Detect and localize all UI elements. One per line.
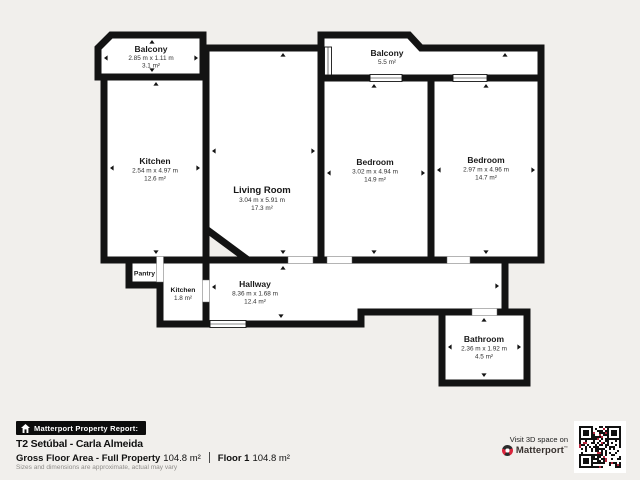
room-area: 14.9 m²: [364, 177, 386, 184]
room-area: 3.1 m²: [142, 63, 160, 70]
floor-value: 104.8 m²: [252, 453, 290, 464]
room-dims: 2.36 m x 1.92 m: [461, 346, 507, 353]
stats-divider: [209, 452, 210, 463]
room-name: Bathroom: [464, 334, 505, 344]
door-bedroom-left-hallway: [327, 257, 352, 264]
floor-plan-walls: [98, 35, 541, 383]
matterport-brand: Matterport™: [470, 445, 568, 456]
report-badge: Matterport Property Report:: [16, 421, 146, 435]
brand-name-text: Matterport: [516, 445, 564, 456]
door-kitchen-small-hallway: [203, 280, 210, 302]
report-badge-label: Matterport Property Report:: [34, 424, 138, 433]
room-area: 12.4 m²: [244, 299, 266, 306]
visit-3d-text: Visit 3D space on: [470, 435, 568, 444]
floor-label: Floor 1: [218, 453, 250, 464]
room-dims: 3.04 m x 5.91 m: [239, 197, 285, 204]
room-balcony-top-right-shape: [321, 35, 541, 78]
room-name: Balcony: [370, 48, 403, 58]
gross-area-label: Gross Floor Area - Full Property: [16, 453, 160, 464]
room-name: Balcony: [134, 44, 167, 54]
room-dims: 8.36 m x 1.68 m: [232, 291, 278, 298]
door-living-hallway: [288, 257, 313, 264]
room-name: Living Room: [233, 185, 291, 196]
room-name: Kitchen: [171, 287, 196, 294]
room-area: 12.6 m²: [144, 176, 166, 183]
room-living-shape: [206, 48, 321, 260]
room-area: 17.3 m²: [251, 205, 273, 212]
area-stats: Gross Floor Area - Full Property104.8 m²…: [16, 452, 290, 464]
room-name: Bedroom: [356, 157, 394, 167]
brand-trademark: ™: [564, 445, 568, 450]
gross-area-value: 104.8 m²: [163, 453, 201, 464]
room-area: 1.8 m²: [174, 295, 192, 302]
room-name: Hallway: [239, 279, 271, 289]
room-area: 14.7 m²: [475, 175, 497, 182]
matterport-wordmark: Matterport™: [516, 445, 568, 456]
room-area: 5.5 m²: [378, 59, 396, 66]
room-dims: 2.54 m x 4.97 m: [132, 168, 178, 175]
room-dims: 3.02 m x 4.94 m: [352, 169, 398, 176]
door-bedroom-right-hallway: [447, 257, 470, 264]
property-title: T2 Setúbal - Carla Almeida: [16, 438, 143, 450]
qr-code: [579, 426, 621, 468]
floor-plan: Balcony 2.85 m x 1.11 m 3.1 m² Kitchen 2…: [0, 0, 640, 412]
label-pantry: Pantry: [134, 271, 155, 278]
house-icon: [21, 424, 30, 433]
label-kitchen-small: Kitchen 1.8 m²: [171, 287, 196, 302]
door-kitchen-pantry: [157, 257, 164, 283]
room-area: 4.5 m²: [475, 354, 493, 361]
room-name: Bedroom: [467, 155, 505, 165]
matterport-floorplan-report: Balcony 2.85 m x 1.11 m 3.1 m² Kitchen 2…: [0, 0, 640, 480]
disclaimer-text: Sizes and dimensions are approximate, ac…: [16, 464, 177, 471]
room-name: Pantry: [134, 271, 155, 278]
room-dims: 2.97 m x 4.96 m: [463, 167, 509, 174]
matterport-logo-icon: [502, 445, 513, 456]
room-dims: 2.85 m x 1.11 m: [128, 55, 173, 62]
door-bathroom: [472, 309, 497, 316]
room-name: Kitchen: [139, 156, 170, 166]
